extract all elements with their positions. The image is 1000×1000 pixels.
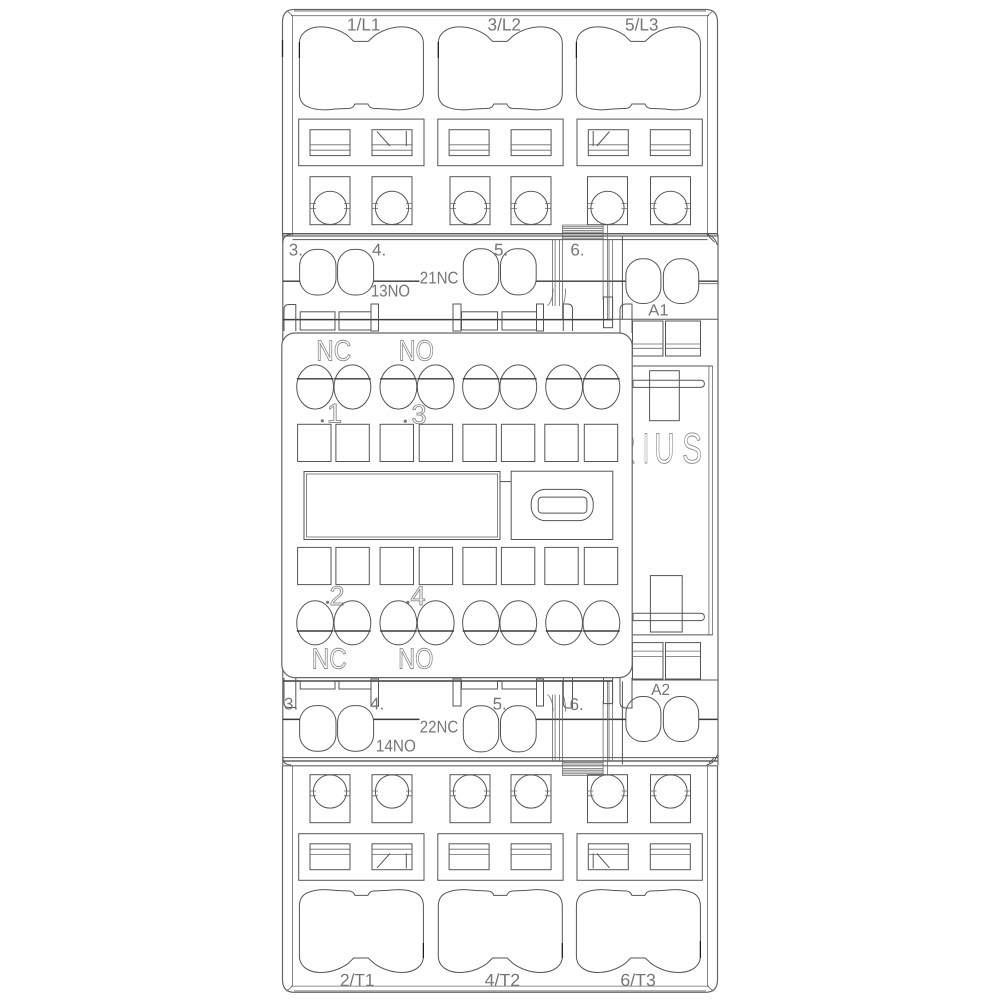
svg-text:6/T3: 6/T3 xyxy=(620,970,656,990)
svg-text:NC: NC xyxy=(312,644,347,676)
svg-text:3/L2: 3/L2 xyxy=(488,14,522,34)
svg-text:I: I xyxy=(643,425,649,473)
svg-text:4.: 4. xyxy=(372,240,386,259)
svg-text:13NO: 13NO xyxy=(371,281,410,300)
svg-text:2/T1: 2/T1 xyxy=(340,970,375,990)
svg-text:14NO: 14NO xyxy=(376,737,416,756)
svg-text:6.: 6. xyxy=(570,240,584,259)
svg-text:S: S xyxy=(682,425,702,473)
svg-text:3.: 3. xyxy=(284,695,298,714)
svg-text:A2: A2 xyxy=(651,681,670,699)
svg-text:A1: A1 xyxy=(648,302,668,320)
svg-text:2: 2 xyxy=(330,581,345,611)
svg-text:21NC: 21NC xyxy=(420,268,459,287)
svg-text:1/L1: 1/L1 xyxy=(347,14,381,34)
svg-text:5.: 5. xyxy=(494,240,508,259)
svg-text:22NC: 22NC xyxy=(420,717,459,736)
svg-text:U: U xyxy=(654,425,674,473)
svg-text:4/T2: 4/T2 xyxy=(485,970,521,990)
svg-text:3.: 3. xyxy=(289,240,303,259)
svg-text:NO: NO xyxy=(398,644,433,676)
svg-text:5/L3: 5/L3 xyxy=(625,14,659,34)
svg-text:5.: 5. xyxy=(493,695,507,714)
svg-text:4.: 4. xyxy=(370,695,384,714)
svg-text:NO: NO xyxy=(399,336,434,368)
svg-text:6.: 6. xyxy=(570,695,584,714)
svg-text:NC: NC xyxy=(316,336,351,368)
